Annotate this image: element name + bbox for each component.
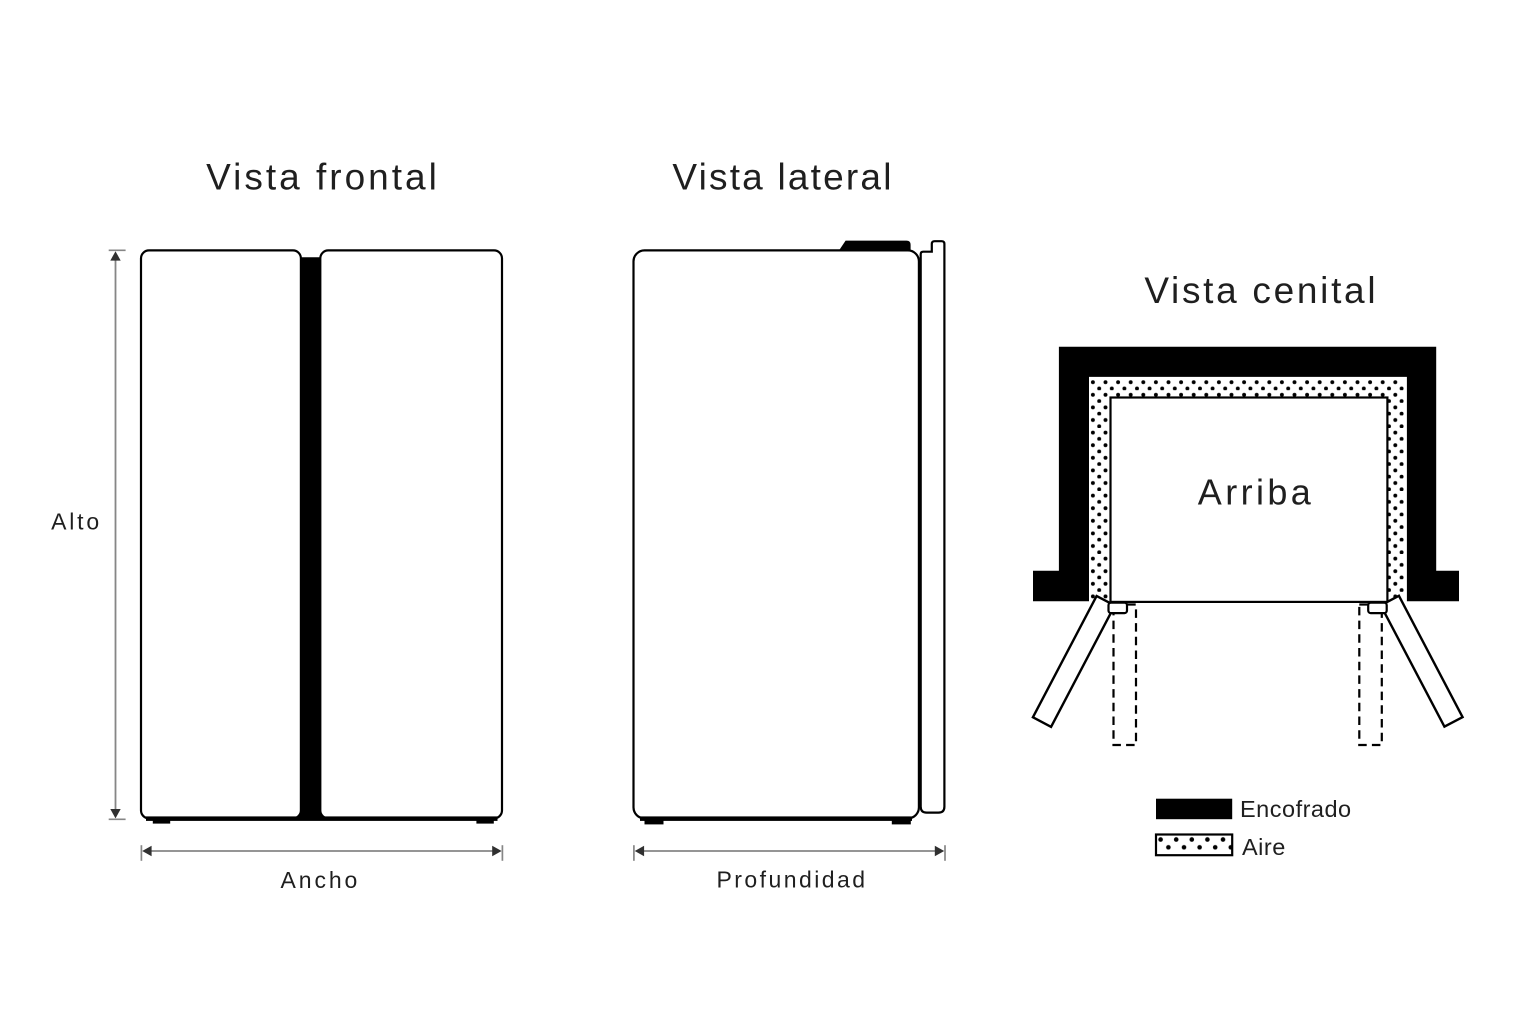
svg-text:Aire: Aire (1242, 834, 1286, 860)
svg-text:Arriba: Arriba (1198, 472, 1314, 513)
svg-text:Alto: Alto (51, 509, 102, 535)
svg-text:Profundidad: Profundidad (717, 866, 868, 892)
svg-text:Vista cenital: Vista cenital (1144, 270, 1378, 311)
svg-text:Vista lateral: Vista lateral (672, 156, 893, 197)
svg-text:Ancho: Ancho (281, 867, 361, 893)
svg-text:Encofrado: Encofrado (1240, 796, 1352, 822)
svg-text:Vista frontal: Vista frontal (206, 156, 440, 197)
